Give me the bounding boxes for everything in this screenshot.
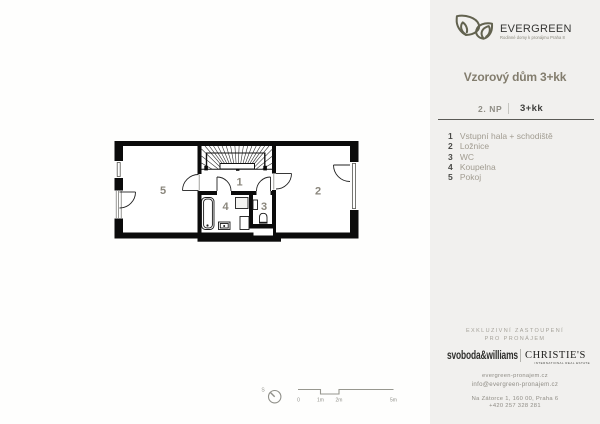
svg-text:1: 1 bbox=[236, 177, 242, 189]
svg-text:S: S bbox=[261, 388, 265, 394]
svg-text:2m: 2m bbox=[336, 398, 343, 404]
svg-text:2: 2 bbox=[315, 186, 321, 198]
svg-text:3: 3 bbox=[261, 201, 267, 213]
svg-text:1m: 1m bbox=[317, 398, 324, 404]
svg-text:4: 4 bbox=[222, 201, 229, 213]
svg-text:5m: 5m bbox=[390, 398, 397, 404]
svg-text:5: 5 bbox=[160, 185, 166, 197]
svg-text:0: 0 bbox=[297, 398, 300, 404]
